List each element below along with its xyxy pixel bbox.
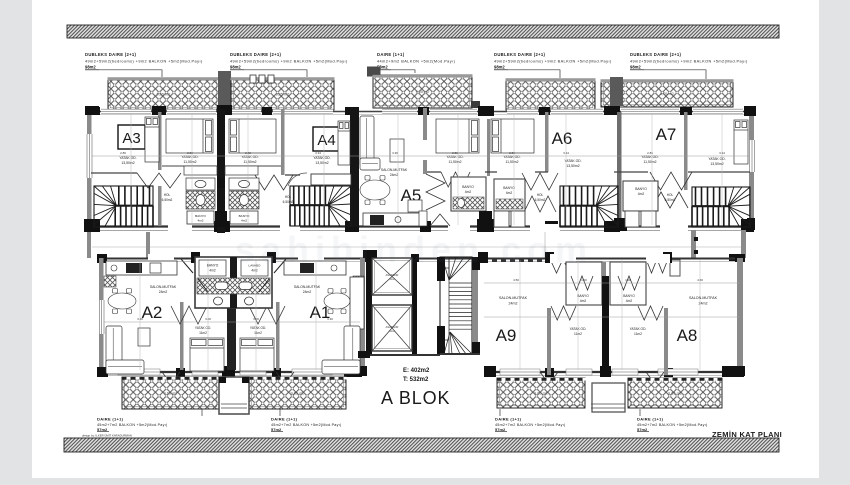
svg-text:4m2: 4m2 (638, 192, 645, 196)
svg-text:45m2+7m2 BALKON +5m2(Mod.Payı): 45m2+7m2 BALKON +5m2(Mod.Payı) (637, 423, 707, 427)
svg-text:DUBLEKS DAIRE (2+1): DUBLEKS DAIRE (2+1) (494, 52, 545, 57)
svg-text:9,65 m2: 9,65 m2 (291, 392, 305, 396)
svg-text:45m2+7m2 BALKON +5m2(Mod.Payı): 45m2+7m2 BALKON +5m2(Mod.Payı) (495, 423, 565, 427)
svg-text:11,50m2: 11,50m2 (449, 160, 462, 164)
svg-text:YATAK OD.: YATAK OD. (313, 156, 330, 160)
svg-text:YATAK OD.: YATAK OD. (241, 155, 258, 159)
svg-text:BANYO: BANYO (239, 214, 250, 218)
svg-text:A BLOK: A BLOK (381, 388, 450, 408)
svg-text:ASANSÖR: ASANSÖR (386, 325, 399, 329)
svg-text:YATAK OD.: YATAK OD. (446, 155, 463, 159)
svg-text:11,50m2: 11,50m2 (506, 160, 519, 164)
svg-text:45m2+7m2 BALKON +5m2(Mod.Payı): 45m2+7m2 BALKON +5m2(Mod.Payı) (271, 423, 341, 427)
svg-text:YATAK OD.: YATAK OD. (641, 155, 658, 159)
svg-text:design by: İLKER ÜMİT KARADURM: design by: İLKER ÜMİT KARADURMAN (82, 433, 132, 438)
svg-text:9,65 m2: 9,65 m2 (668, 392, 682, 396)
svg-text:2.86: 2.86 (647, 151, 653, 155)
svg-text:24m2: 24m2 (509, 302, 518, 306)
svg-text:11m2: 11m2 (634, 332, 642, 336)
svg-text:SALON-MUTFAK: SALON-MUTFAK (150, 285, 177, 289)
svg-text:9,05 m2: 9,05 m2 (416, 90, 430, 94)
svg-text:11,50m2: 11,50m2 (244, 160, 257, 164)
svg-text:6,50m2: 6,50m2 (162, 198, 173, 202)
svg-text:98m2: 98m2 (494, 65, 505, 70)
svg-text:49m2+59m2(bedrooms) +9m2 BALKO: 49m2+59m2(bedrooms) +9m2 BALKON +5m2(Mod… (85, 60, 203, 64)
svg-text:YATAK OD.: YATAK OD. (564, 159, 581, 163)
svg-text:49m2+59m2(bedrooms) +9m2 BALKO: 49m2+59m2(bedrooms) +9m2 BALKON +5m2(Mod… (494, 60, 612, 64)
svg-text:9,65 m2: 9,65 m2 (534, 392, 548, 396)
svg-text:4m2: 4m2 (626, 299, 633, 303)
svg-text:45m2+7m2 BALKON +5m2(Mod.Payı): 45m2+7m2 BALKON +5m2(Mod.Payı) (97, 423, 167, 427)
svg-text:A6: A6 (552, 129, 573, 148)
svg-text:SALON-MUTFAK: SALON-MUTFAK (294, 285, 321, 289)
svg-text:HOL: HOL (537, 193, 544, 197)
svg-text:BANYO: BANYO (195, 214, 206, 218)
svg-text:DAIRE (1+1): DAIRE (1+1) (97, 417, 124, 422)
svg-text:BANYO: BANYO (623, 294, 635, 298)
svg-text:3.34: 3.34 (315, 151, 321, 155)
svg-text:BANYO: BANYO (503, 186, 515, 190)
svg-text:6,50m2: 6,50m2 (535, 198, 546, 202)
svg-text:1.00: 1.00 (581, 278, 587, 282)
svg-text:24m2: 24m2 (390, 173, 399, 177)
svg-text:DAIRE (1+1): DAIRE (1+1) (495, 417, 522, 422)
svg-text:13,50m2: 13,50m2 (121, 161, 134, 165)
svg-text:A2: A2 (142, 303, 163, 322)
svg-text:BANYO: BANYO (462, 185, 474, 189)
svg-text:YATAK OD.: YATAK OD. (708, 157, 725, 161)
svg-text:5m2: 5m2 (389, 277, 395, 281)
svg-text:9,65 m2: 9,65 m2 (164, 392, 178, 396)
svg-text:98m2: 98m2 (230, 65, 241, 70)
svg-text:YATAK OD.: YATAK OD. (503, 155, 520, 159)
svg-text:49m2+59m2(bedrooms) +9m2 BALKO: 49m2+59m2(bedrooms) +9m2 BALKON +5m2(Mod… (630, 60, 748, 64)
svg-text:2.80: 2.80 (187, 151, 193, 155)
svg-text:YATAK OD.: YATAK OD. (630, 327, 647, 331)
svg-text:2.80: 2.80 (452, 151, 458, 155)
svg-text:4.50: 4.50 (513, 278, 519, 282)
svg-text:11,50m2: 11,50m2 (644, 160, 657, 164)
svg-text:6,50m2: 6,50m2 (665, 198, 676, 202)
svg-text:13,50m2: 13,50m2 (566, 164, 579, 168)
svg-text:24m2: 24m2 (159, 290, 168, 294)
svg-text:T: 532m2: T: 532m2 (403, 377, 429, 383)
svg-text:4m2: 4m2 (209, 269, 216, 273)
svg-text:49m2+59m2(bedrooms) +9m2 BALKO: 49m2+59m2(bedrooms) +9m2 BALKON +5m2(Mod… (230, 60, 348, 64)
svg-text:ZEMİN KAT PLANI: ZEMİN KAT PLANI (712, 430, 782, 439)
svg-text:9,05 m2: 9,05 m2 (660, 92, 674, 96)
svg-text:DUBLEKS DAIRE (2+1): DUBLEKS DAIRE (2+1) (630, 52, 681, 57)
svg-text:3.30: 3.30 (327, 317, 333, 321)
svg-text:ASANSÖR: ASANSÖR (386, 273, 399, 277)
svg-text:6,50m2: 6,50m2 (283, 200, 294, 204)
svg-text:BANYO: BANYO (207, 264, 219, 268)
svg-text:DAIRE (1+1): DAIRE (1+1) (637, 417, 664, 422)
svg-text:HOL: HOL (164, 193, 171, 197)
svg-text:4m2: 4m2 (580, 299, 587, 303)
svg-text:HOL: HOL (667, 193, 674, 197)
svg-text:A7: A7 (656, 125, 677, 144)
svg-text:2.80: 2.80 (509, 151, 515, 155)
svg-text:1.08: 1.08 (625, 278, 631, 282)
svg-text:4m2: 4m2 (465, 190, 472, 194)
svg-text:13,50m2: 13,50m2 (315, 161, 328, 165)
svg-text:98m2: 98m2 (85, 65, 96, 70)
svg-text:E: 402m2: E: 402m2 (403, 368, 430, 374)
svg-text:YATAK OD.: YATAK OD. (195, 326, 211, 330)
svg-text:SALON-MUTFAK: SALON-MUTFAK (499, 296, 528, 300)
svg-text:YATAK OD.: YATAK OD. (250, 326, 266, 330)
svg-text:24m2: 24m2 (303, 290, 312, 294)
svg-text:BANYO: BANYO (635, 187, 647, 191)
svg-text:11m2: 11m2 (199, 331, 207, 335)
svg-text:11,50m2: 11,50m2 (184, 160, 197, 164)
svg-text:9,05 m2: 9,05 m2 (157, 93, 171, 97)
svg-text:11m2: 11m2 (254, 331, 262, 335)
svg-text:HOL: HOL (285, 195, 292, 199)
svg-text:A4: A4 (317, 132, 335, 149)
svg-text:2.86: 2.86 (120, 151, 126, 155)
svg-text:SALON-MUTFAK: SALON-MUTFAK (689, 296, 718, 300)
svg-text:DAIRE (1+1): DAIRE (1+1) (377, 52, 405, 57)
svg-text:DAIRE (1+1): DAIRE (1+1) (271, 417, 298, 422)
svg-text:DUBLEKS DAIRE (2+1): DUBLEKS DAIRE (2+1) (230, 52, 281, 57)
svg-text:BANYO: BANYO (577, 294, 589, 298)
svg-text:YATAK OD.: YATAK OD. (119, 156, 136, 160)
svg-text:sahibinden com: sahibinden com (235, 229, 593, 270)
svg-text:A8: A8 (677, 326, 698, 345)
svg-text:3.36: 3.36 (392, 151, 398, 155)
svg-text:5m2: 5m2 (389, 329, 395, 333)
svg-text:A3: A3 (122, 130, 140, 147)
svg-text:44m2+9m2 BALKON +5m2(Mod.Payı): 44m2+9m2 BALKON +5m2(Mod.Payı) (377, 60, 456, 64)
svg-text:DUBLEKS DAIRE (2+1): DUBLEKS DAIRE (2+1) (85, 52, 136, 57)
svg-text:YATAK OD.: YATAK OD. (181, 155, 198, 159)
svg-text:SALON-MUTFAK: SALON-MUTFAK (381, 168, 408, 172)
svg-text:4m2: 4m2 (241, 219, 247, 223)
svg-text:4m2: 4m2 (197, 219, 203, 223)
svg-text:98m2: 98m2 (630, 65, 641, 70)
svg-text:4m2: 4m2 (506, 191, 513, 195)
svg-text:A9: A9 (496, 326, 517, 345)
svg-text:13,50m2: 13,50m2 (710, 162, 723, 166)
svg-text:9,05 m2: 9,05 m2 (276, 93, 290, 97)
